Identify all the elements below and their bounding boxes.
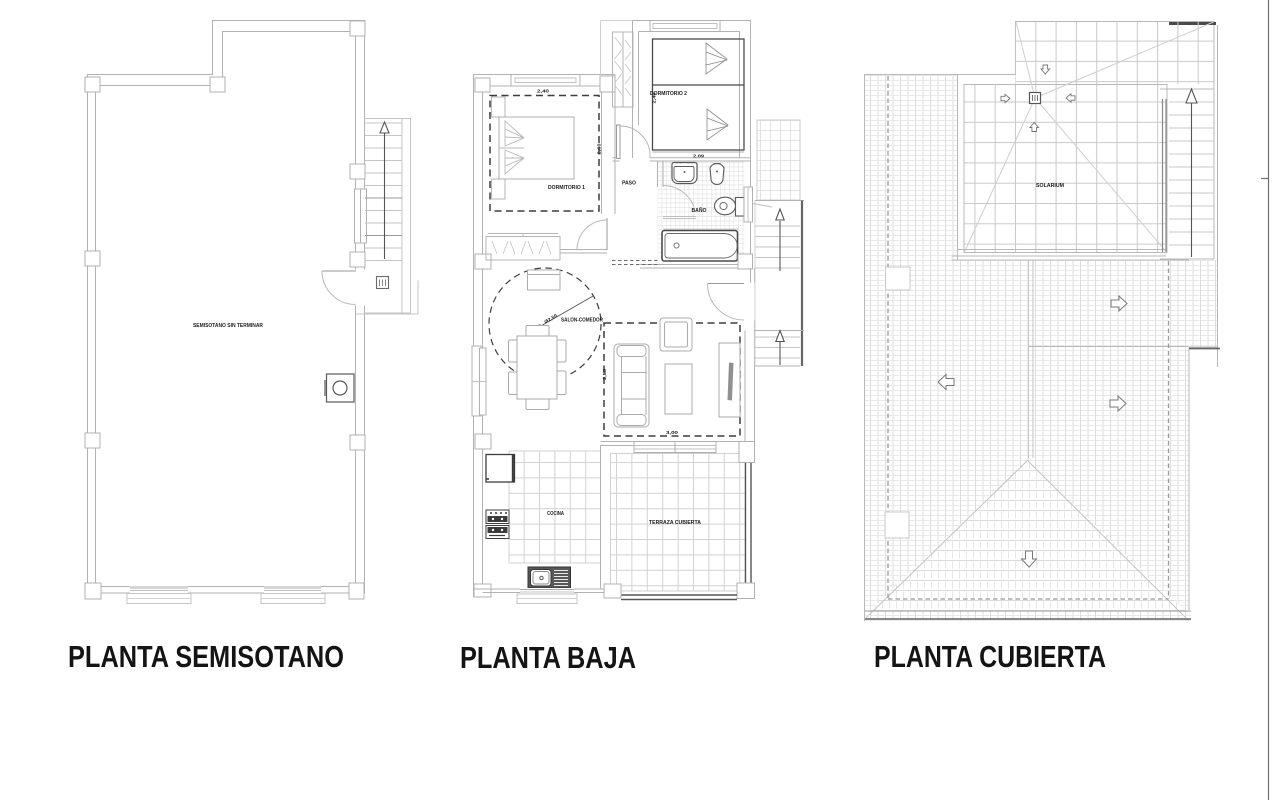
svg-text:SEMISOTANO SIN TERMINAR: SEMISOTANO SIN TERMINAR xyxy=(193,323,263,329)
svg-text:2,50: 2,50 xyxy=(602,368,607,380)
svg-text:BAÑO: BAÑO xyxy=(692,207,707,214)
svg-text:TERRAZA CUBIERTA: TERRAZA CUBIERTA xyxy=(649,520,701,526)
svg-text:DORMITORIO 1: DORMITORIO 1 xyxy=(548,185,585,191)
svg-text:PLANTA SEMISOTANO: PLANTA SEMISOTANO xyxy=(68,639,344,674)
svg-text:PLANTA BAJA: PLANTA BAJA xyxy=(460,640,636,675)
svg-text:SOLARIUM: SOLARIUM xyxy=(1036,183,1064,189)
svg-text:SALON-COMEDOR: SALON-COMEDOR xyxy=(561,318,603,324)
svg-text:2,40: 2,40 xyxy=(652,92,657,104)
svg-text:PLANTA CUBIERTA: PLANTA CUBIERTA xyxy=(874,639,1106,674)
svg-text:COCINA: COCINA xyxy=(547,511,564,517)
svg-text:PASO: PASO xyxy=(622,181,636,187)
svg-text:2,60: 2,60 xyxy=(597,143,602,155)
svg-text:2,40: 2,40 xyxy=(537,89,550,94)
svg-text:3,00: 3,00 xyxy=(666,430,679,435)
